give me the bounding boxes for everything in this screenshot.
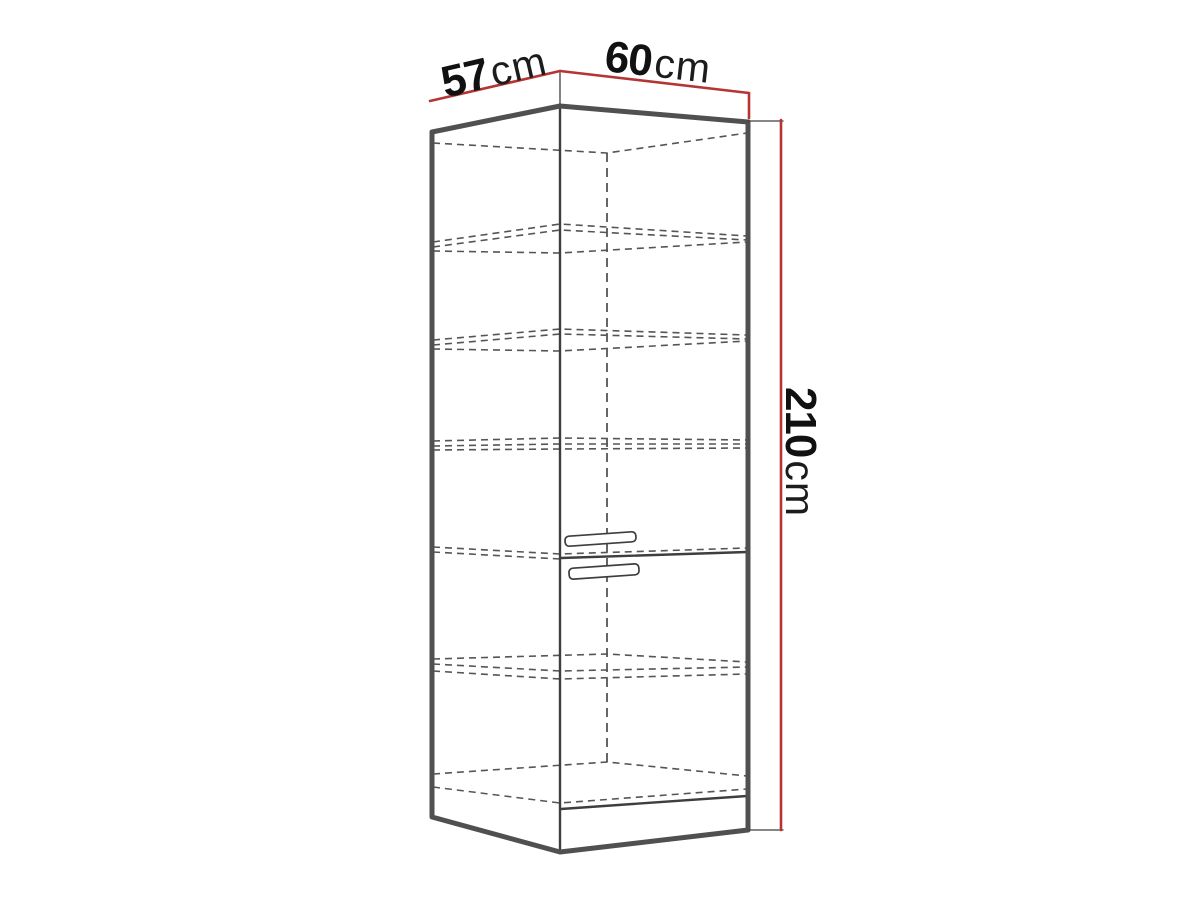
dimension-height-value: 210	[775, 387, 825, 457]
dimension-label-height: 210cm	[775, 377, 825, 527]
cabinet-diagram-svg	[0, 0, 1200, 900]
dimension-diagram: 57cm 60cm 210cm	[0, 0, 1200, 900]
cabinet-face-fill	[432, 106, 748, 852]
dimension-height-unit: cm	[775, 460, 825, 517]
dimension-width-unit: cm	[652, 38, 714, 94]
dimension-width-value: 60	[602, 32, 654, 87]
dimension-depth-value: 57	[436, 49, 493, 108]
